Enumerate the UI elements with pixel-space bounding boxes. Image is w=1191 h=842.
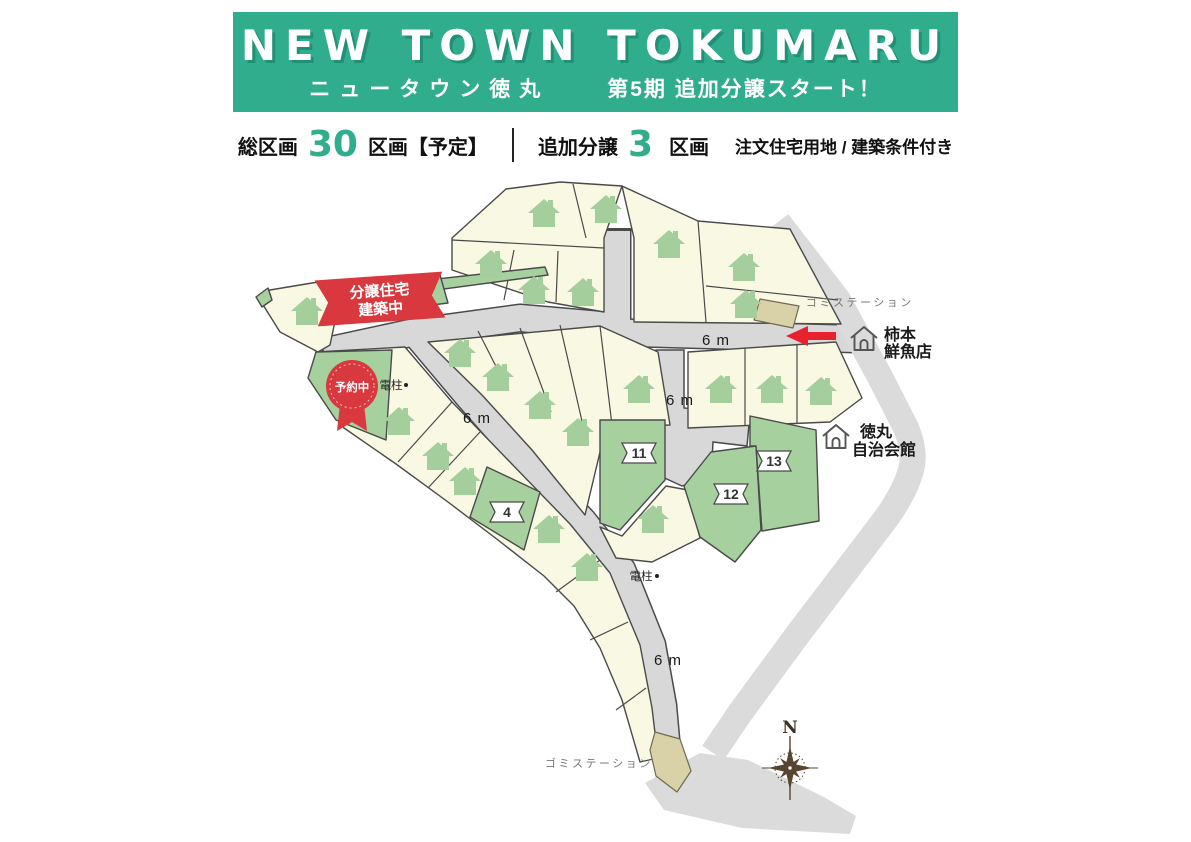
flyer-page: NEW TOWN TOKUMARU ニュータウン徳丸 第5期 追加分譲スタート！…: [0, 0, 1191, 842]
road-width-label: 6 m: [702, 332, 730, 349]
lot-number: 4: [503, 504, 511, 520]
utility-pole-label: 電柱: [380, 378, 403, 392]
lot-13: [750, 416, 819, 531]
lot-number: 11: [632, 445, 647, 461]
road-width-label: 6 m: [666, 392, 694, 409]
site-map: 4 11 12 13 分譲住宅 建築中 予約中 柿本 鮮魚店: [0, 0, 1191, 842]
lot-number: 12: [723, 486, 739, 502]
landmark-house-icon: [823, 425, 849, 448]
garbage-station-label: ゴミステーション: [806, 295, 914, 309]
road-width-label: 6 m: [654, 652, 682, 669]
utility-pole-label: 電柱: [630, 569, 653, 583]
construction-badge: 分譲住宅 建築中: [315, 272, 446, 327]
fish-shop-line2: 鮮魚店: [884, 342, 932, 361]
construction-badge-line2: 建築中: [358, 298, 404, 319]
fish-shop-line1: 柿本: [884, 325, 916, 344]
road-width-label: 6 m: [463, 410, 491, 427]
garbage-station-label: ゴミステーション: [545, 756, 653, 770]
reserved-badge-label: 予約中: [335, 380, 370, 394]
lot-number: 13: [766, 453, 782, 469]
community-hall-line1: 徳丸: [859, 422, 893, 441]
compass-north-label: N: [782, 718, 798, 738]
community-hall-line2: 自治会館: [852, 440, 916, 459]
